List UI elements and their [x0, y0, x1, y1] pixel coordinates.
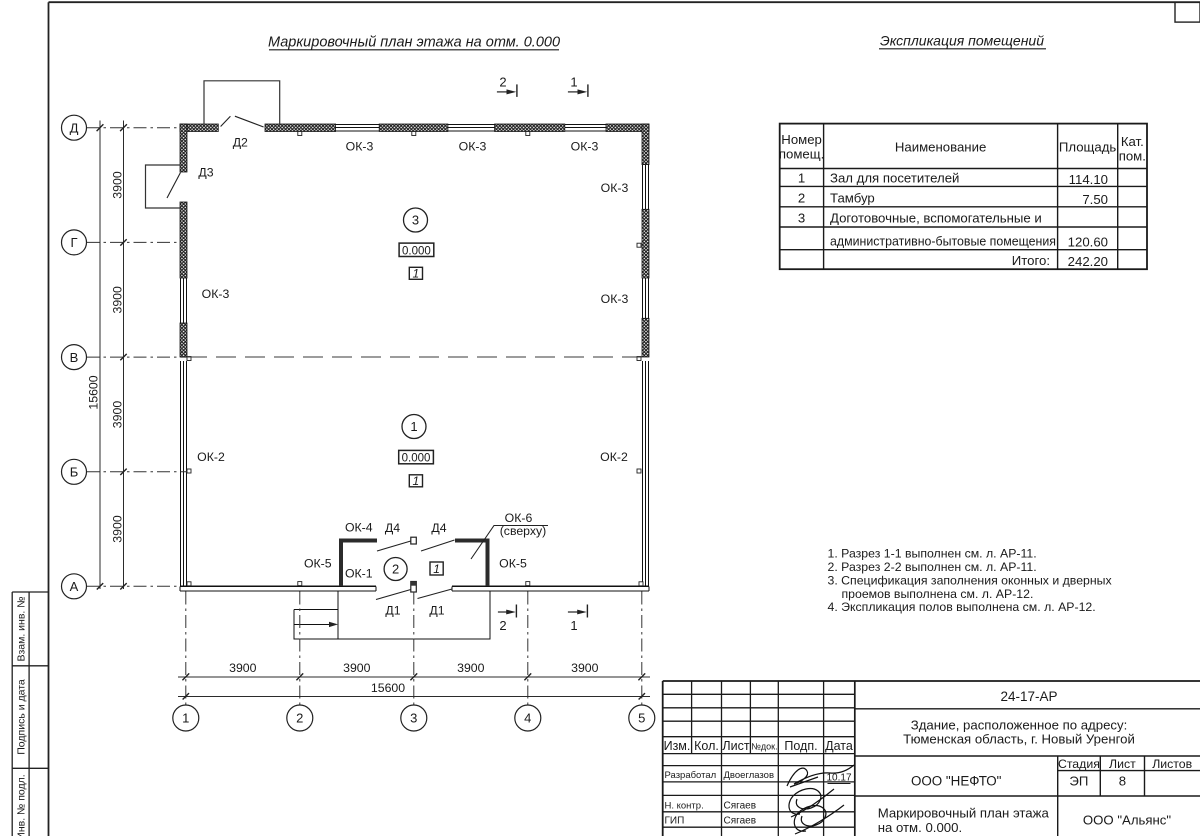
- svg-text:Здание, расположенное по адрес: Здание, расположенное по адресу:: [911, 718, 1128, 733]
- svg-text:1: 1: [413, 474, 420, 488]
- svg-text:Д4: Д4: [431, 521, 446, 535]
- svg-text:114.10: 114.10: [1069, 172, 1108, 187]
- svg-text:7.50: 7.50: [1082, 192, 1108, 207]
- svg-text:Д1: Д1: [385, 604, 400, 618]
- svg-text:Стадия: Стадия: [1058, 757, 1100, 771]
- svg-text:ОК-3: ОК-3: [601, 292, 629, 306]
- svg-text:ООО "Альянс": ООО "Альянс": [1083, 813, 1171, 828]
- svg-text:ОК-3: ОК-3: [346, 140, 374, 154]
- svg-text:Маркировочный план этажа на от: Маркировочный план этажа на отм. 0.000: [268, 35, 560, 51]
- svg-text:Сягаев: Сягаев: [724, 815, 757, 826]
- svg-text:4. Экспликация полов выполнена: 4. Экспликация полов выполнена см. л. АР…: [828, 600, 1096, 614]
- svg-text:24-17-АР: 24-17-АР: [1000, 689, 1057, 704]
- svg-text:В: В: [70, 350, 79, 365]
- svg-text:Кат.: Кат.: [1121, 134, 1144, 149]
- svg-text:ОК-3: ОК-3: [601, 181, 629, 195]
- svg-text:5: 5: [638, 711, 645, 726]
- svg-text:помещ.: помещ.: [779, 146, 824, 161]
- svg-text:Инв. № подл.: Инв. № подл.: [15, 774, 27, 836]
- svg-text:3: 3: [412, 213, 419, 228]
- svg-text:1. Разрез 1-1 выполнен см. л.: 1. Разрез 1-1 выполнен см. л. АР-11.: [828, 547, 1037, 561]
- svg-text:Лист: Лист: [1109, 757, 1136, 771]
- svg-text:3900: 3900: [110, 171, 124, 199]
- svg-text:Д1: Д1: [429, 604, 444, 618]
- svg-text:Номер: Номер: [781, 132, 822, 147]
- svg-text:15600: 15600: [371, 681, 405, 695]
- svg-text:Дата: Дата: [825, 739, 853, 753]
- svg-text:Площадь: Площадь: [1059, 140, 1117, 155]
- svg-text:10.17: 10.17: [826, 773, 851, 784]
- svg-text:1: 1: [413, 267, 420, 281]
- svg-text:2: 2: [296, 711, 303, 726]
- svg-text:2: 2: [499, 618, 506, 633]
- svg-text:2: 2: [392, 562, 399, 577]
- svg-text:Разработал: Разработал: [665, 770, 717, 781]
- svg-text:пом.: пом.: [1119, 149, 1146, 164]
- svg-text:№док.: №док.: [751, 742, 777, 752]
- svg-text:Б: Б: [70, 465, 79, 480]
- svg-text:Итого:: Итого:: [1012, 253, 1050, 268]
- svg-text:3900: 3900: [457, 661, 485, 675]
- svg-text:4: 4: [524, 711, 531, 726]
- svg-text:Сягаев: Сягаев: [724, 800, 757, 811]
- svg-text:3900: 3900: [343, 661, 371, 675]
- svg-text:2: 2: [499, 75, 506, 90]
- svg-text:ОК-2: ОК-2: [600, 450, 628, 464]
- svg-text:административно-бытовые помеще: административно-бытовые помещения: [830, 233, 1056, 248]
- svg-text:Доготовочные, вспомогательные: Доготовочные, вспомогательные и: [830, 211, 1042, 226]
- svg-text:ОК-4: ОК-4: [345, 521, 373, 535]
- svg-text:ОК-1: ОК-1: [345, 567, 373, 581]
- svg-text:Д4: Д4: [385, 521, 400, 535]
- svg-text:Тамбур: Тамбур: [830, 191, 875, 206]
- svg-text:2. Разрез 2-2 выполнен см. л.: 2. Разрез 2-2 выполнен см. л. АР-11.: [828, 560, 1037, 574]
- svg-text:3900: 3900: [110, 515, 124, 543]
- svg-text:1: 1: [410, 419, 417, 434]
- svg-text:3900: 3900: [571, 661, 599, 675]
- svg-text:3900: 3900: [110, 286, 124, 314]
- svg-text:3900: 3900: [229, 661, 257, 675]
- svg-text:ОК-3: ОК-3: [459, 140, 487, 154]
- svg-text:Г: Г: [70, 235, 77, 250]
- svg-text:Подп.: Подп.: [784, 739, 817, 753]
- svg-text:Д: Д: [70, 120, 79, 135]
- svg-text:Д3: Д3: [198, 166, 213, 180]
- svg-text:2: 2: [798, 191, 805, 206]
- svg-text:ЭП: ЭП: [1069, 773, 1088, 788]
- svg-text:8: 8: [1119, 773, 1126, 788]
- svg-text:ОК-3: ОК-3: [571, 140, 599, 154]
- svg-text:3900: 3900: [110, 401, 124, 429]
- svg-text:(сверху): (сверху): [500, 524, 547, 538]
- svg-text:Тюменская область, г. Новый Ур: Тюменская область, г. Новый Уренгой: [903, 732, 1135, 747]
- svg-text:1: 1: [570, 618, 577, 633]
- svg-text:Двоеглазов: Двоеглазов: [724, 770, 775, 781]
- svg-text:ОК-5: ОК-5: [499, 557, 527, 571]
- svg-text:1: 1: [570, 75, 577, 90]
- svg-text:Наименование: Наименование: [895, 140, 986, 155]
- svg-text:15600: 15600: [87, 375, 101, 409]
- svg-text:1: 1: [182, 711, 189, 726]
- svg-text:Лист: Лист: [722, 739, 749, 753]
- svg-text:1: 1: [433, 562, 440, 576]
- svg-text:ОК-5: ОК-5: [304, 557, 332, 571]
- svg-text:242.20: 242.20: [1068, 254, 1108, 269]
- svg-text:Листов: Листов: [1152, 757, 1192, 771]
- svg-text:ОК-3: ОК-3: [202, 287, 230, 301]
- svg-text:ГИП: ГИП: [665, 815, 685, 826]
- svg-text:А: А: [70, 579, 79, 594]
- svg-text:3: 3: [410, 711, 417, 726]
- svg-text:проемов выполнена см. л. АР-12: проемов выполнена см. л. АР-12.: [842, 587, 1034, 601]
- svg-text:Изм.: Изм.: [664, 739, 691, 753]
- svg-text:3. Спецификация заполнения око: 3. Спецификация заполнения оконных и две…: [828, 573, 1113, 587]
- svg-text:0.000: 0.000: [402, 245, 431, 257]
- svg-text:Взам. инв. №: Взам. инв. №: [15, 596, 27, 661]
- svg-text:Зал для посетителей: Зал для посетителей: [830, 170, 959, 185]
- svg-text:на отм. 0.000.: на отм. 0.000.: [878, 820, 962, 835]
- svg-text:Кол.: Кол.: [694, 739, 719, 753]
- svg-text:ОК-2: ОК-2: [197, 450, 225, 464]
- svg-text:ООО "НЕФТО": ООО "НЕФТО": [911, 773, 1002, 788]
- svg-text:Экспликация помещений: Экспликация помещений: [880, 33, 1044, 49]
- svg-text:Маркировочный план этажа: Маркировочный план этажа: [878, 805, 1050, 820]
- svg-text:1: 1: [798, 170, 805, 185]
- svg-text:Подпись и дата: Подпись и дата: [15, 679, 27, 755]
- svg-text:0.000: 0.000: [402, 453, 431, 465]
- svg-text:Д2: Д2: [233, 136, 248, 150]
- svg-text:120.60: 120.60: [1068, 235, 1108, 250]
- svg-text:3: 3: [798, 211, 805, 226]
- svg-text:Н. контр.: Н. контр.: [665, 800, 704, 811]
- svg-text:ОК-6: ОК-6: [505, 511, 533, 525]
